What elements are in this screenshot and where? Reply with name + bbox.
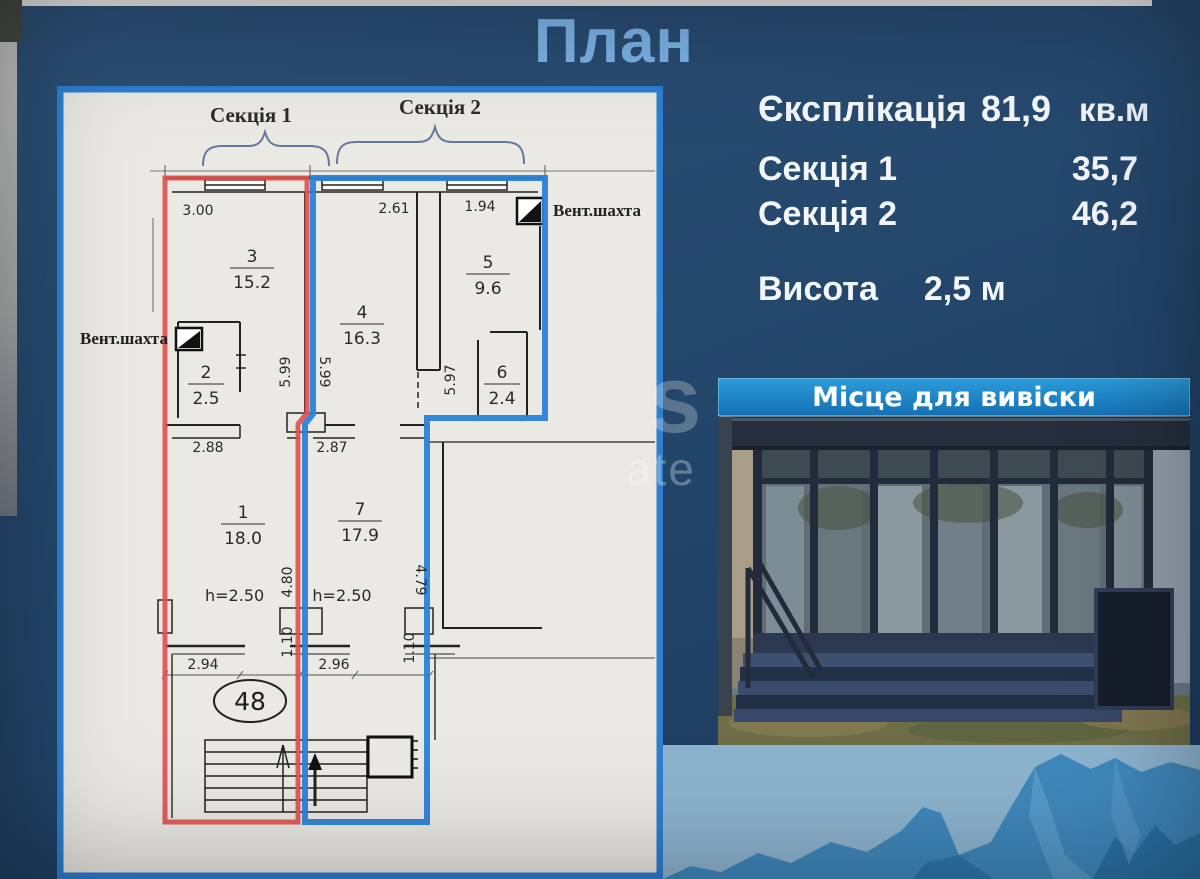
svg-text:4.80: 4.80 <box>280 566 296 597</box>
svg-text:1: 1 <box>238 503 249 523</box>
svg-text:18.0: 18.0 <box>224 529 262 549</box>
porch-stairs <box>734 653 1122 722</box>
under-porch-opening <box>1096 590 1172 708</box>
vent-shaft-label-right: Вент.шахта <box>553 201 641 220</box>
vent-shaft-icon-left <box>176 328 202 350</box>
explication-label: Єксплікація <box>758 88 967 130</box>
svg-text:2.96: 2.96 <box>318 657 349 673</box>
height-label: Висота <box>758 270 878 309</box>
floor-plan: Секція 1 Секція 2 <box>57 86 663 879</box>
explication-row: Єксплікація 81,9 кв.м <box>758 88 1138 130</box>
svg-text:9.6: 9.6 <box>474 279 501 299</box>
svg-text:2.87: 2.87 <box>316 440 347 456</box>
svg-text:5.99: 5.99 <box>316 356 332 387</box>
section1-label: Секція 1 <box>210 103 292 127</box>
svg-text:2.61: 2.61 <box>378 201 409 217</box>
screen-edge-left <box>0 0 17 516</box>
section1-row-label: Секція 1 <box>758 150 897 189</box>
svg-text:5: 5 <box>483 253 494 273</box>
svg-text:2.5: 2.5 <box>192 389 219 409</box>
svg-text:16.3: 16.3 <box>343 329 381 349</box>
watermark-letter: s <box>648 352 701 448</box>
svg-text:1.10: 1.10 <box>402 632 418 663</box>
explication-unit: кв.м <box>1079 91 1149 129</box>
height-row: Висота 2,5 м <box>758 270 1138 309</box>
summary-panel: Єксплікація 81,9 кв.м Секція 1 35,7 Секц… <box>758 88 1138 309</box>
svg-text:6: 6 <box>497 363 508 383</box>
signboard-text: Місце для вивіски <box>812 382 1096 413</box>
svg-text:3: 3 <box>247 247 258 267</box>
svg-text:2.88: 2.88 <box>192 440 223 456</box>
svg-text:2.94: 2.94 <box>187 657 218 673</box>
vent-shaft-label-left: Вент.шахта <box>80 329 168 348</box>
section2-row: Секція 2 46,2 <box>758 195 1138 234</box>
svg-text:2.4: 2.4 <box>488 389 515 409</box>
explication-value: 81,9 <box>981 88 1051 130</box>
decor-mountains <box>663 745 1200 879</box>
screen-corner <box>0 0 22 42</box>
svg-text:2: 2 <box>201 363 212 383</box>
svg-text:1.94: 1.94 <box>464 199 495 215</box>
section2-label: Секція 2 <box>399 95 481 119</box>
building-photo: Місце для вивіски <box>718 378 1190 747</box>
svg-text:3.00: 3.00 <box>182 203 213 219</box>
svg-text:5.97: 5.97 <box>443 364 459 395</box>
svg-text:4.79: 4.79 <box>412 564 428 595</box>
svg-text:7: 7 <box>355 500 366 520</box>
slide: План Секція 1 Секція 2 <box>0 0 1200 879</box>
svg-text:h=2.50: h=2.50 <box>312 586 371 605</box>
section1-row: Секція 1 35,7 <box>758 150 1138 189</box>
svg-text:5.99: 5.99 <box>278 356 294 387</box>
svg-text:4: 4 <box>357 303 368 323</box>
svg-text:15.2: 15.2 <box>233 273 271 293</box>
svg-text:17.9: 17.9 <box>341 526 379 546</box>
svg-text:1.10: 1.10 <box>280 626 296 657</box>
svg-text:48: 48 <box>234 687 266 716</box>
watermark-text: ate <box>626 446 696 492</box>
page-title: План <box>444 6 784 77</box>
porch-roof <box>718 416 1190 450</box>
section2-row-label: Секція 2 <box>758 195 897 234</box>
section1-row-value: 35,7 <box>1072 150 1138 189</box>
vent-shaft-icon-right <box>517 198 543 224</box>
height-value: 2,5 м <box>924 270 1006 309</box>
svg-text:h=2.50: h=2.50 <box>205 586 264 605</box>
section2-row-value: 46,2 <box>1072 195 1138 234</box>
